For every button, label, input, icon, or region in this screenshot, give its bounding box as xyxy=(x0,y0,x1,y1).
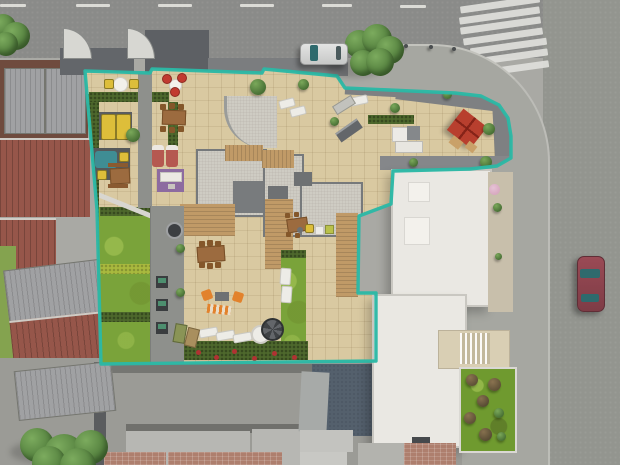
wood-deck xyxy=(225,145,263,161)
dining-chair xyxy=(199,262,205,268)
patio-chair xyxy=(286,232,291,237)
yellow-chair xyxy=(104,79,114,89)
potted-bush xyxy=(298,79,309,90)
potted-bush xyxy=(176,288,185,297)
roof-structure xyxy=(233,181,263,213)
yellow-chair xyxy=(97,170,107,180)
potted-bush xyxy=(176,244,185,253)
bottom-ramp xyxy=(300,450,347,465)
entrance-apron xyxy=(358,443,404,465)
red-chair xyxy=(162,74,172,84)
entrance-brick-roof xyxy=(404,443,456,465)
dining-chair xyxy=(169,103,175,109)
dining-chair xyxy=(160,104,166,110)
driveway-patch xyxy=(145,30,209,75)
orange-armchair xyxy=(232,291,245,304)
lane-dash xyxy=(240,4,274,7)
corrugated-red-roof xyxy=(0,138,90,217)
planter-box xyxy=(156,322,168,334)
garden-bush xyxy=(494,408,504,418)
dining-chair xyxy=(215,241,221,247)
windshield xyxy=(580,269,600,278)
corrugated-gray-roof-rear xyxy=(14,361,117,421)
potted-bush xyxy=(250,79,266,95)
barbecue xyxy=(166,222,183,239)
white-armchair xyxy=(392,127,408,142)
dining-chair xyxy=(207,240,213,246)
potted-bush xyxy=(483,123,495,135)
red-flowers xyxy=(196,350,201,355)
red-flowers xyxy=(232,349,237,354)
red-chair xyxy=(177,73,187,83)
patio-chair xyxy=(295,233,300,238)
garden-path xyxy=(138,72,152,208)
planter-box xyxy=(156,299,168,311)
walkway-shrub xyxy=(493,203,502,212)
hedge-flowerbed xyxy=(184,341,308,360)
lane-dash xyxy=(158,4,192,7)
yellow-sun-lounger xyxy=(101,114,116,140)
rear-window xyxy=(336,46,341,60)
white-lounger xyxy=(280,286,292,304)
garden-bush xyxy=(466,374,478,386)
windshield xyxy=(310,45,318,61)
wood-deck xyxy=(262,150,294,168)
lawn-hedge-row xyxy=(281,250,306,258)
planter-box xyxy=(156,276,168,288)
dining-chair xyxy=(160,126,166,132)
yellow-chair xyxy=(129,79,139,89)
dining-chair xyxy=(207,263,213,269)
dining-chair xyxy=(178,126,184,132)
aerial-site-rendering xyxy=(0,0,620,465)
wood-deck xyxy=(336,213,358,297)
white-lounger xyxy=(289,105,307,118)
gray-bench xyxy=(335,119,363,143)
hedge-strip xyxy=(368,115,414,124)
pouf xyxy=(297,227,303,233)
lane-dash xyxy=(322,4,352,7)
dining-table-6 xyxy=(162,110,187,126)
potted-bush xyxy=(390,103,400,113)
coffee-table xyxy=(168,184,175,189)
white-bench xyxy=(395,141,423,153)
garden-bush xyxy=(479,428,492,441)
gray-lounger xyxy=(332,95,356,115)
bottom-brick-roof xyxy=(168,452,282,465)
yellow-chair xyxy=(119,152,129,162)
spiral-staircase xyxy=(261,318,284,341)
bench-table xyxy=(110,167,131,184)
gray-module xyxy=(407,126,420,140)
rear-window xyxy=(581,294,599,302)
skylight xyxy=(404,217,430,245)
bench xyxy=(108,184,128,188)
dining-chair xyxy=(215,262,221,268)
roof-structure xyxy=(294,172,312,186)
red-flowers xyxy=(214,355,219,360)
parasol-chair xyxy=(465,141,478,153)
mini-chair-white xyxy=(315,226,324,235)
red-chair xyxy=(170,87,180,97)
garden-bush xyxy=(488,378,501,391)
red-flowers xyxy=(252,356,257,361)
garden-bush xyxy=(464,412,476,424)
skylight xyxy=(408,182,430,202)
white-building-roof-lower xyxy=(372,294,467,448)
walkway-shrub xyxy=(495,253,502,260)
orange-armchair xyxy=(201,289,214,302)
coffee-table xyxy=(215,292,229,301)
garden-bush xyxy=(497,432,506,441)
potted-bush xyxy=(409,158,418,167)
corrugated-gray-roof xyxy=(45,68,86,134)
staircase xyxy=(460,333,490,364)
potted-bush xyxy=(330,117,339,126)
bollard xyxy=(404,44,408,48)
red-flowers xyxy=(272,351,277,356)
right-road xyxy=(543,0,620,465)
bollard xyxy=(452,47,456,51)
potted-bush xyxy=(126,128,140,142)
mini-chair xyxy=(305,224,314,233)
patio-chair xyxy=(285,213,290,218)
bench xyxy=(108,163,128,167)
dining-chair xyxy=(199,241,205,247)
gravel-deck xyxy=(224,96,277,148)
concrete-ramp-low xyxy=(300,430,353,452)
dining-chair xyxy=(169,127,175,133)
red-lounger xyxy=(166,145,178,167)
corrugated-gray-roof xyxy=(4,68,45,134)
mini-chair-green xyxy=(325,225,334,234)
concrete-ramp xyxy=(298,371,329,432)
bottom-brick-roof xyxy=(104,452,166,465)
lane-dash xyxy=(0,4,26,7)
potted-bush xyxy=(480,156,492,168)
roof-seam-cover xyxy=(393,297,461,306)
red-flowers xyxy=(292,355,297,360)
lane-dash xyxy=(400,5,426,8)
dining-chair xyxy=(178,104,184,110)
garden-bush xyxy=(477,395,489,407)
dining-table-6 xyxy=(196,245,225,263)
pink-blossom-tree xyxy=(489,184,500,195)
bollard xyxy=(429,45,433,49)
hedge-strip-top xyxy=(89,92,169,102)
white-sofa xyxy=(160,172,182,182)
red-lounger xyxy=(152,145,164,167)
lane-dash xyxy=(76,4,110,7)
wood-deck xyxy=(180,204,235,236)
white-lounger xyxy=(279,268,291,286)
striped-lounger xyxy=(207,304,232,315)
round-table xyxy=(113,77,128,92)
patio-chair xyxy=(294,212,299,217)
